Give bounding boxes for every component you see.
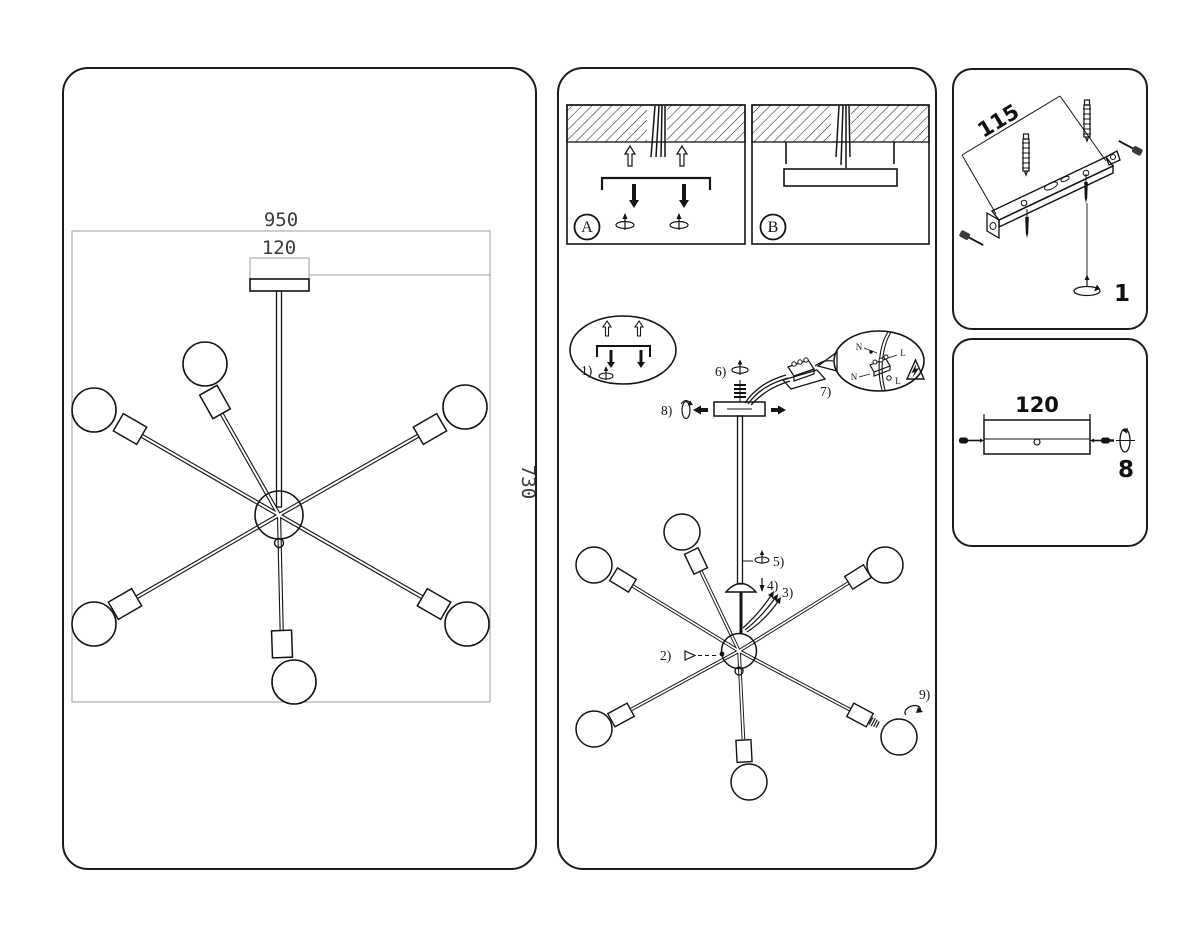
screw-turn-icons-a [616, 213, 688, 230]
step1-bubble: 1) [570, 316, 676, 384]
arms-outline [621, 561, 860, 751]
step4-group: 4) [760, 578, 779, 593]
step2-group: 2) [660, 648, 724, 663]
step2-label: 2) [660, 648, 671, 663]
canopy-panel: 120 8 [952, 338, 1148, 547]
anchor-arrows-small [603, 321, 643, 336]
wire-n-top-label: N [856, 342, 863, 352]
wiring-detail-bubble: N L N L [818, 331, 924, 391]
l-top-leader [888, 355, 897, 358]
screw-turn-icon-6 [732, 360, 748, 376]
wire-l-top-label: L [900, 348, 906, 358]
terminal-screws [792, 358, 808, 366]
instruction-sheet: 950 120 730 [0, 0, 1200, 933]
screw-arrows-small [607, 350, 645, 368]
option-b-label: B [768, 219, 779, 236]
step6-group: 6) [715, 360, 748, 403]
step5-label: 5) [773, 554, 784, 569]
cone-cover [726, 584, 756, 593]
step6-label: 6) [715, 364, 726, 379]
mount-bracket-a [602, 178, 710, 190]
canopy-drawing: 120 8 [954, 340, 1146, 545]
step8-label: 8) [661, 403, 672, 418]
installation-panel: A B [557, 67, 937, 870]
side-screw-icon-right [1090, 438, 1114, 444]
rotate-icon [1074, 275, 1100, 296]
canopy-width-label: 120 [1015, 393, 1059, 417]
side-screw-icon-left [959, 230, 985, 248]
small-slot [1060, 175, 1070, 182]
option-a-label: A [581, 219, 593, 236]
canopy-assembly: 8) [661, 401, 786, 419]
l-bottom-screw [887, 376, 891, 380]
bracket-qty-label: 1 [1114, 281, 1130, 307]
screw-turn-icon-1 [599, 366, 613, 380]
step9-group: 9) [905, 687, 930, 715]
step3-label: 3) [782, 585, 793, 600]
hub-wires [743, 594, 779, 632]
arrow-left-icon [693, 406, 708, 415]
right-flange-hole [1111, 155, 1116, 160]
wire-l-bottom-label: L [895, 376, 901, 386]
wire-n-bottom-label: N [851, 372, 858, 382]
bracket-drawing: 115 [954, 70, 1146, 328]
canopy-plate-b [784, 169, 897, 186]
slot-hole [1043, 180, 1058, 191]
dim-canopy-width: 120 [262, 237, 296, 259]
canopy-hole [1034, 439, 1040, 445]
stem-rod [277, 291, 282, 507]
dimensions-panel: 950 120 730 [62, 67, 537, 870]
mount-option-b: B [752, 105, 929, 244]
step9-label: 9) [919, 687, 930, 702]
step4-arrow-head [760, 585, 765, 592]
bracket-3d [987, 151, 1120, 238]
wall-anchor-icon-1 [1022, 134, 1030, 175]
rotate-icon [1116, 428, 1135, 452]
down-rod [738, 416, 743, 584]
dim-overall-height: 730 [517, 465, 535, 499]
step1-label: 1) [581, 363, 592, 378]
screw-turn-icon-5 [755, 550, 769, 564]
wire-gap-b [831, 106, 851, 141]
mount-option-a: A [567, 105, 745, 244]
dim-overall-width: 950 [264, 209, 298, 231]
n-bottom-leader [859, 374, 870, 377]
step7-label: 7) [820, 384, 831, 399]
step2-arrow [685, 651, 695, 660]
screw-down-arrows [629, 184, 689, 208]
step4-label: 4) [767, 578, 778, 593]
installation-drawing: A B [559, 69, 935, 868]
canopy-plate-front [984, 414, 1090, 454]
bracket-panel: 115 [952, 68, 1148, 330]
screw-hole-left [1021, 200, 1027, 206]
exploded-chandelier [576, 514, 917, 800]
left-flange-hole [990, 223, 996, 230]
right-flange [1106, 151, 1120, 165]
side-screw-icon-left [959, 438, 984, 444]
side-screw-icon-right [1117, 138, 1143, 156]
loose-bulb [881, 719, 917, 755]
chandelier-drawing [72, 279, 489, 704]
arrow-right-icon [771, 406, 786, 415]
canopy-qty-label: 8 [1118, 457, 1134, 483]
mount-pins-b [786, 142, 894, 164]
side-screw-turn-icon [681, 401, 693, 419]
ceiling-canopy [250, 279, 309, 291]
step5-group: 5) [743, 550, 784, 569]
dimensions-drawing: 950 120 730 [64, 69, 535, 868]
bracket-length-label: 115 [973, 99, 1023, 142]
n-top-dot [869, 350, 872, 353]
